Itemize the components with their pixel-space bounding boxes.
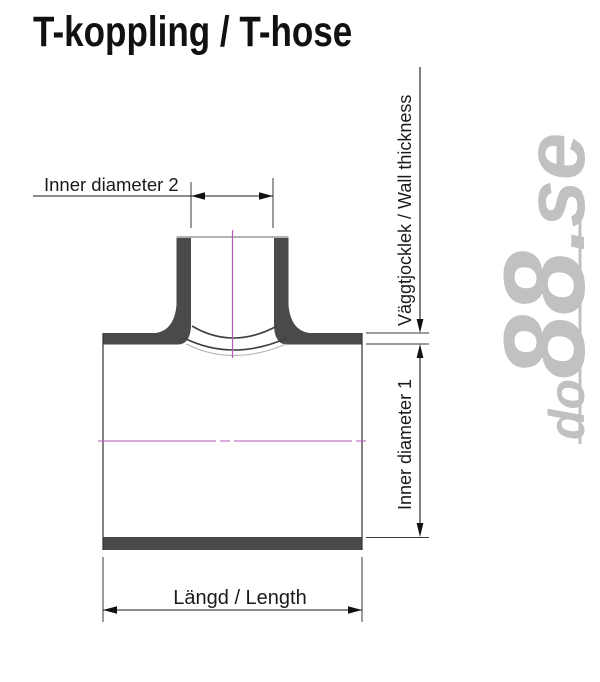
saddle-arc-upper (192, 326, 277, 338)
watermark-88: 88 (481, 251, 600, 379)
length-arrow-left (103, 606, 117, 614)
length-label: Längd / Length (173, 587, 306, 609)
length-arrow-right (348, 606, 362, 614)
dimension-inner-diameter-2: Inner diameter 2 (33, 174, 273, 228)
dimension-inner-diameter-1: Inner diameter 1 (366, 344, 429, 538)
dimension-length: Längd / Length (103, 557, 362, 622)
watermark-do: do (539, 379, 595, 440)
saddle-arc-lower (184, 338, 287, 350)
t-coupling-technical-drawing: Inner diameter 2 Väggtjocklek / Wall thi… (0, 0, 600, 682)
watermark-se: .se (508, 133, 600, 251)
id2-arrow-left (191, 192, 205, 200)
left-wall-section (103, 238, 191, 345)
right-wall-section (274, 238, 362, 345)
watermark-text: do88.se (481, 133, 600, 440)
id2-arrow-right (259, 192, 273, 200)
wt-label: Väggtjocklek / Wall thickness (395, 95, 415, 326)
diagram-canvas: T-koppling / T-hose (0, 0, 600, 682)
wt-arrow-down (417, 319, 424, 333)
bottom-wall-section (103, 537, 362, 550)
watermark: do88.se (481, 133, 600, 444)
id1-arrow-down (417, 523, 424, 537)
dimension-wall-thickness: Väggtjocklek / Wall thickness (366, 67, 429, 344)
id1-label: Inner diameter 1 (395, 379, 415, 510)
id2-label: Inner diameter 2 (44, 174, 179, 195)
